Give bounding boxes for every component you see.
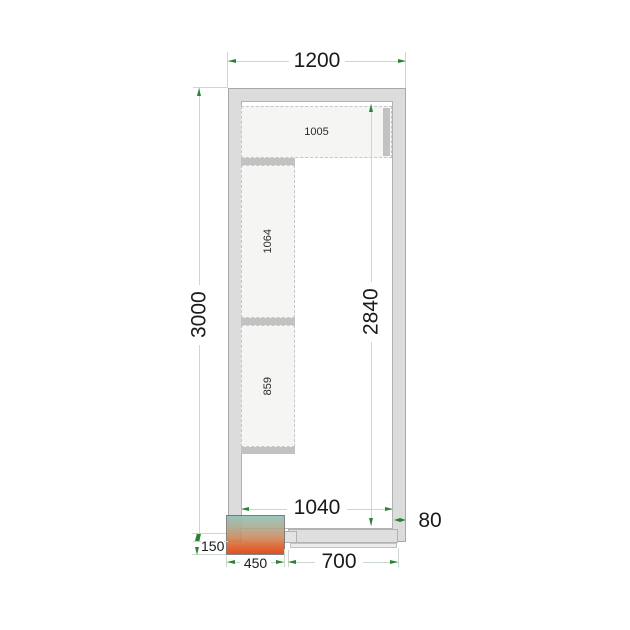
dim-700-arrow-right	[390, 560, 398, 564]
dim-door-width-label: 700	[315, 552, 363, 572]
shelf-left-lower: 859	[241, 325, 295, 447]
shelf-divider-2	[241, 318, 295, 325]
door-frame-tab	[284, 531, 297, 543]
dim-2840-arrow-up	[369, 104, 373, 112]
dim-outer-depth-label: 3000	[189, 285, 210, 345]
shelf-divider-3	[241, 447, 295, 454]
cooling-unit	[226, 515, 285, 555]
floor-plan-drawing: 1005 1064 859 1200 3000 2840 1040 80 150	[0, 0, 630, 630]
dim-1200-arrow-right	[398, 59, 406, 63]
shelf-left-lower-length-label: 859	[262, 377, 274, 395]
shelf-top: 1005	[241, 106, 392, 158]
dim-80-arrow-right	[400, 518, 406, 522]
shelf-top-end-panel	[383, 108, 390, 156]
dim-450-arrow-left	[227, 560, 235, 564]
dim-1200-ext-left	[227, 52, 228, 88]
dim-1200-ext-right	[405, 52, 406, 88]
dim-700-ext-right	[398, 548, 399, 567]
dim-inner-depth-label: 2840	[361, 282, 382, 342]
dim-450-arrow-right	[276, 560, 284, 564]
shelf-left-upper-length-label: 1064	[262, 229, 274, 253]
dim-150-arrow-down	[195, 547, 199, 555]
dim-1040-arrow-right	[385, 507, 393, 511]
shelf-left-upper: 1064	[241, 165, 295, 318]
dim-3000-arrow-up	[197, 88, 201, 96]
dim-outer-width-label: 1200	[289, 51, 345, 71]
dim-inner-width-label: 1040	[287, 498, 347, 518]
dim-unit-width-label: 450	[240, 556, 271, 570]
dim-unit-protrusion-label: 150	[201, 539, 224, 553]
door-leaf-outline	[290, 543, 397, 548]
dim-700-arrow-left	[288, 560, 296, 564]
door-panel	[288, 529, 398, 543]
shelf-top-length-label: 1005	[304, 126, 328, 138]
dim-2840-arrow-down	[369, 518, 373, 526]
dim-1040-arrow-left	[241, 507, 249, 511]
shelf-divider-1	[241, 158, 295, 165]
dim-1200-arrow-left	[228, 59, 236, 63]
dim-450-ext-right	[284, 549, 285, 567]
dim-panel-thickness-label: 80	[413, 511, 447, 531]
dim-700-ext-left	[288, 550, 289, 567]
dim-150-arrow-up	[195, 533, 199, 541]
